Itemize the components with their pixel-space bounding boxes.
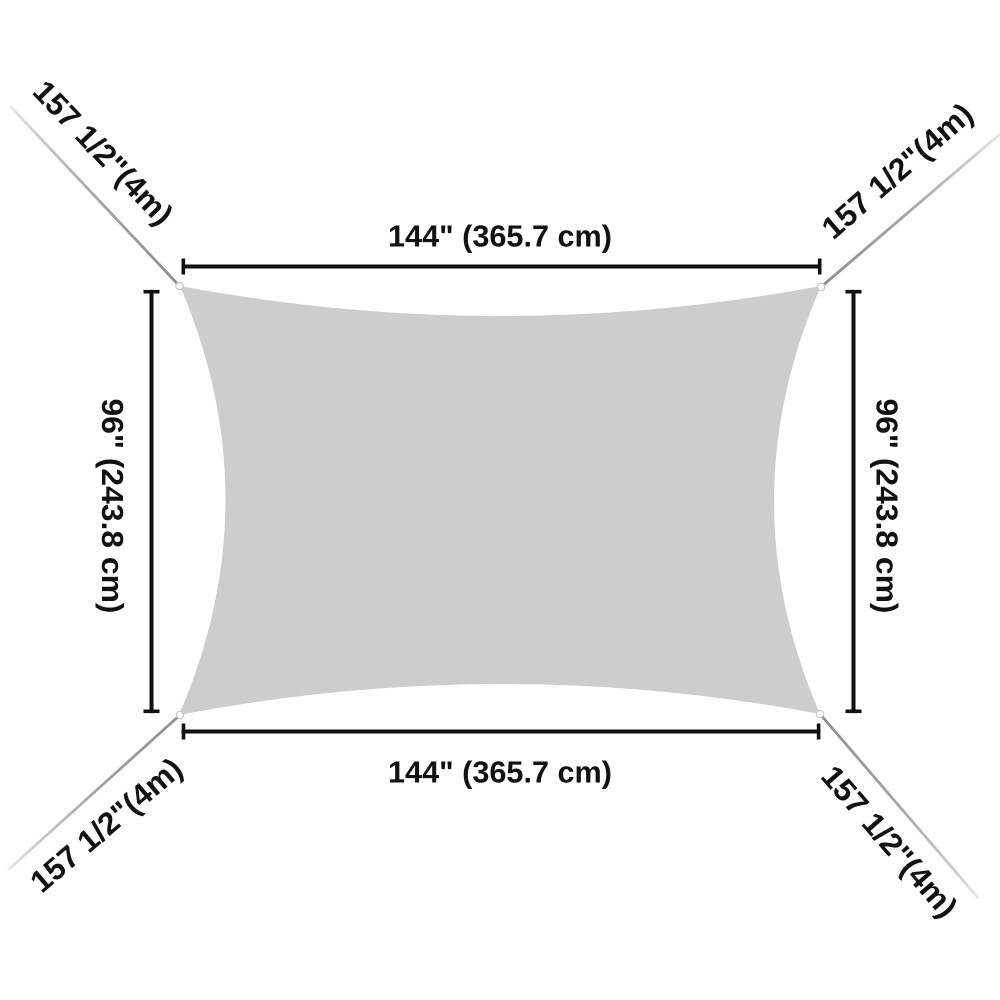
svg-text:96" (243.8 cm): 96" (243.8 cm) <box>870 399 905 614</box>
svg-text:96" (243.8 cm): 96" (243.8 cm) <box>95 399 130 614</box>
svg-text:144" (365.7 cm): 144" (365.7 cm) <box>388 219 612 254</box>
svg-text:144" (365.7 cm): 144" (365.7 cm) <box>388 755 612 790</box>
